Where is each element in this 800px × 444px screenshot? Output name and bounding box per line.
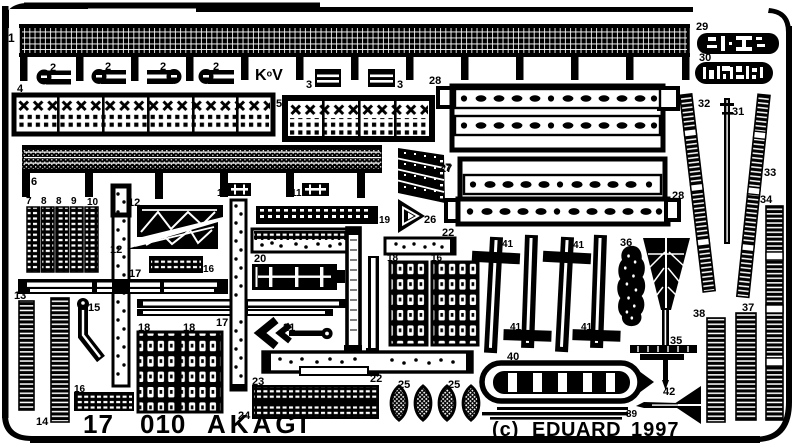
svg-text:15: 15 [88,302,100,314]
svg-text:34: 34 [760,194,773,206]
svg-text:32: 32 [698,98,710,110]
svg-text:41: 41 [573,240,585,251]
svg-text:3: 3 [306,79,312,91]
svg-text:1997: 1997 [631,419,680,441]
svg-text:28: 28 [672,190,684,202]
svg-text:3: 3 [397,79,403,91]
svg-text:31: 31 [732,106,744,118]
svg-text:26: 26 [424,214,436,226]
svg-text:9: 9 [71,196,77,207]
svg-text:8: 8 [41,196,47,207]
svg-text:6: 6 [31,176,37,188]
svg-text:1: 1 [8,31,15,45]
svg-text:28: 28 [429,75,441,87]
svg-text:19: 19 [379,215,391,226]
svg-text:17: 17 [83,409,114,439]
svg-text:41: 41 [502,239,514,250]
svg-text:27: 27 [439,162,451,174]
svg-text:33: 33 [764,167,776,179]
svg-text:16: 16 [203,264,215,275]
svg-text:(c): (c) [492,419,519,441]
svg-text:AKAGI: AKAGI [207,409,311,439]
svg-text:8: 8 [56,196,62,207]
svg-text:42: 42 [663,386,675,398]
svg-text:11: 11 [291,188,302,199]
svg-text:22: 22 [370,373,382,385]
svg-text:17: 17 [129,268,141,280]
svg-text:EDUARD: EDUARD [532,419,621,441]
svg-text:38: 38 [693,308,705,320]
svg-text:010: 010 [140,409,186,439]
svg-text:12: 12 [110,244,122,256]
svg-text:5: 5 [276,98,282,110]
svg-text:14: 14 [36,416,49,428]
svg-text:7: 7 [26,196,32,207]
svg-text:20: 20 [254,253,266,265]
svg-text:11: 11 [217,188,228,199]
svg-text:17: 17 [216,317,228,329]
svg-text:29: 29 [696,21,708,33]
